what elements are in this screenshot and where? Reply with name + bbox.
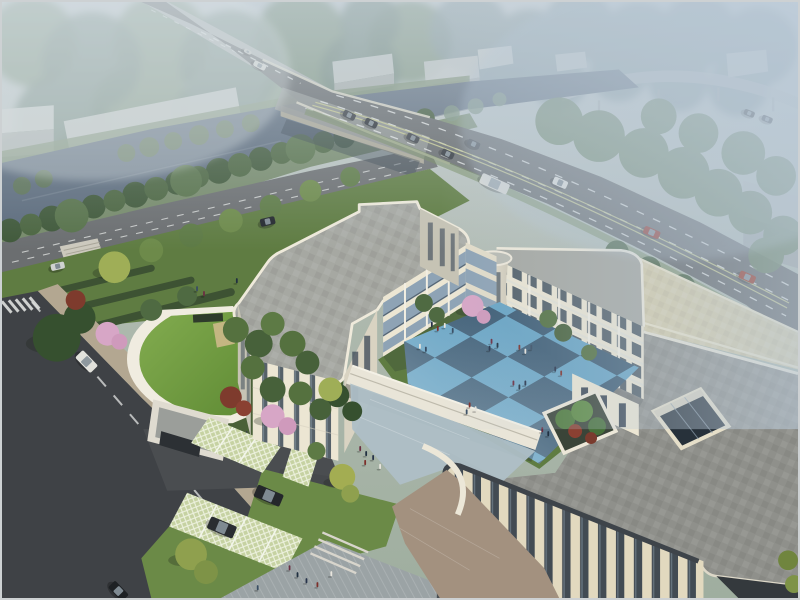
person xyxy=(437,326,439,331)
person xyxy=(236,278,238,283)
person xyxy=(419,344,421,349)
rendering-canvas xyxy=(0,0,800,600)
person xyxy=(425,347,427,352)
person xyxy=(257,585,259,590)
aerial-rendering xyxy=(2,2,798,598)
person xyxy=(317,582,319,587)
red-foliage-tree xyxy=(66,290,86,310)
person xyxy=(196,286,198,291)
annex-skylight xyxy=(193,313,223,322)
person xyxy=(297,572,299,577)
person xyxy=(431,322,433,327)
person xyxy=(289,565,291,570)
person xyxy=(306,578,308,583)
person xyxy=(203,291,205,296)
person xyxy=(365,451,367,456)
person xyxy=(364,460,366,465)
person xyxy=(330,571,332,576)
person xyxy=(547,431,549,436)
person xyxy=(379,464,381,469)
person xyxy=(359,446,361,451)
person xyxy=(372,455,374,460)
